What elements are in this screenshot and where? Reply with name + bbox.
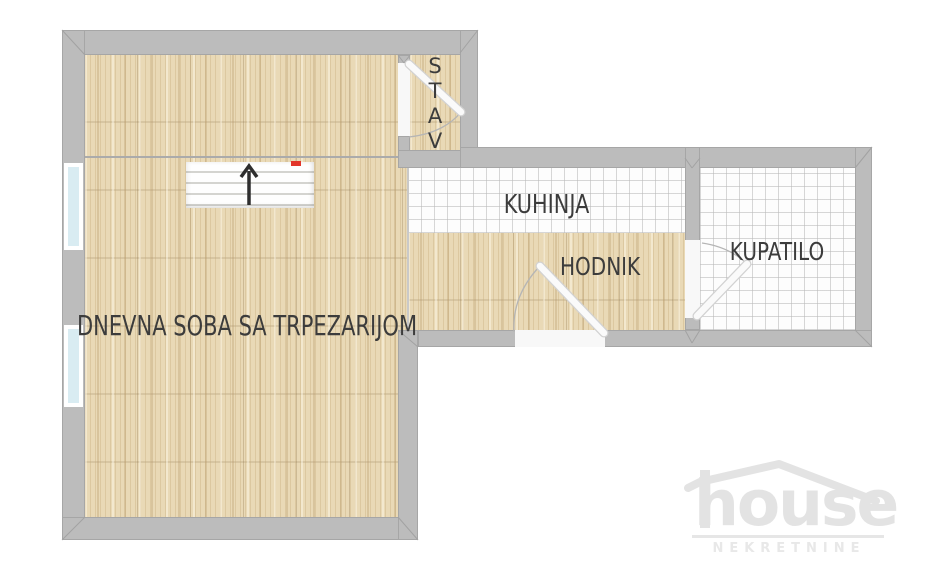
watermark-brand-text: house — [694, 472, 897, 535]
beam-line-living-room — [85, 156, 408, 158]
watermark-tagline: NEKRETNINE — [694, 541, 884, 556]
wall-top-right-section — [460, 147, 872, 168]
room-label-living-room: DNEVNA SOBA SA TRPEZARIJOM — [77, 309, 417, 342]
room-label-bathroom-text: KUPATILO — [730, 237, 824, 266]
door-opening-vestibule — [398, 63, 410, 136]
entry-letter: V — [412, 129, 458, 154]
wall-bottom-right-section — [418, 330, 872, 347]
room-label-hallway-text: HODNIK — [560, 252, 640, 281]
window-left-upper — [64, 163, 83, 250]
entry-letter: T — [412, 79, 458, 104]
wall-left — [62, 30, 85, 540]
wall-right-living-lower — [398, 330, 418, 540]
room-label-kitchen-text: KUHINJA — [504, 190, 590, 220]
room-label-entry-vertical: S T A V — [412, 54, 458, 154]
wall-bottom-living — [62, 517, 418, 540]
room-label-bathroom: KUPATILO — [700, 237, 855, 266]
floor-plan: house NEKRETNINE — [0, 0, 927, 587]
stairs — [186, 162, 314, 208]
stairs-marker — [291, 161, 301, 166]
door-opening-entrance — [515, 330, 605, 347]
room-label-kitchen: KUHINJA — [408, 190, 685, 220]
room-label-hallway: HODNIK — [500, 252, 700, 281]
floor-living-room — [85, 55, 408, 522]
floor-hallway — [408, 233, 685, 330]
entry-letter: S — [412, 54, 458, 79]
wall-top — [62, 30, 478, 55]
entry-letter: A — [412, 104, 458, 129]
wall-bathroom-right — [855, 147, 872, 347]
